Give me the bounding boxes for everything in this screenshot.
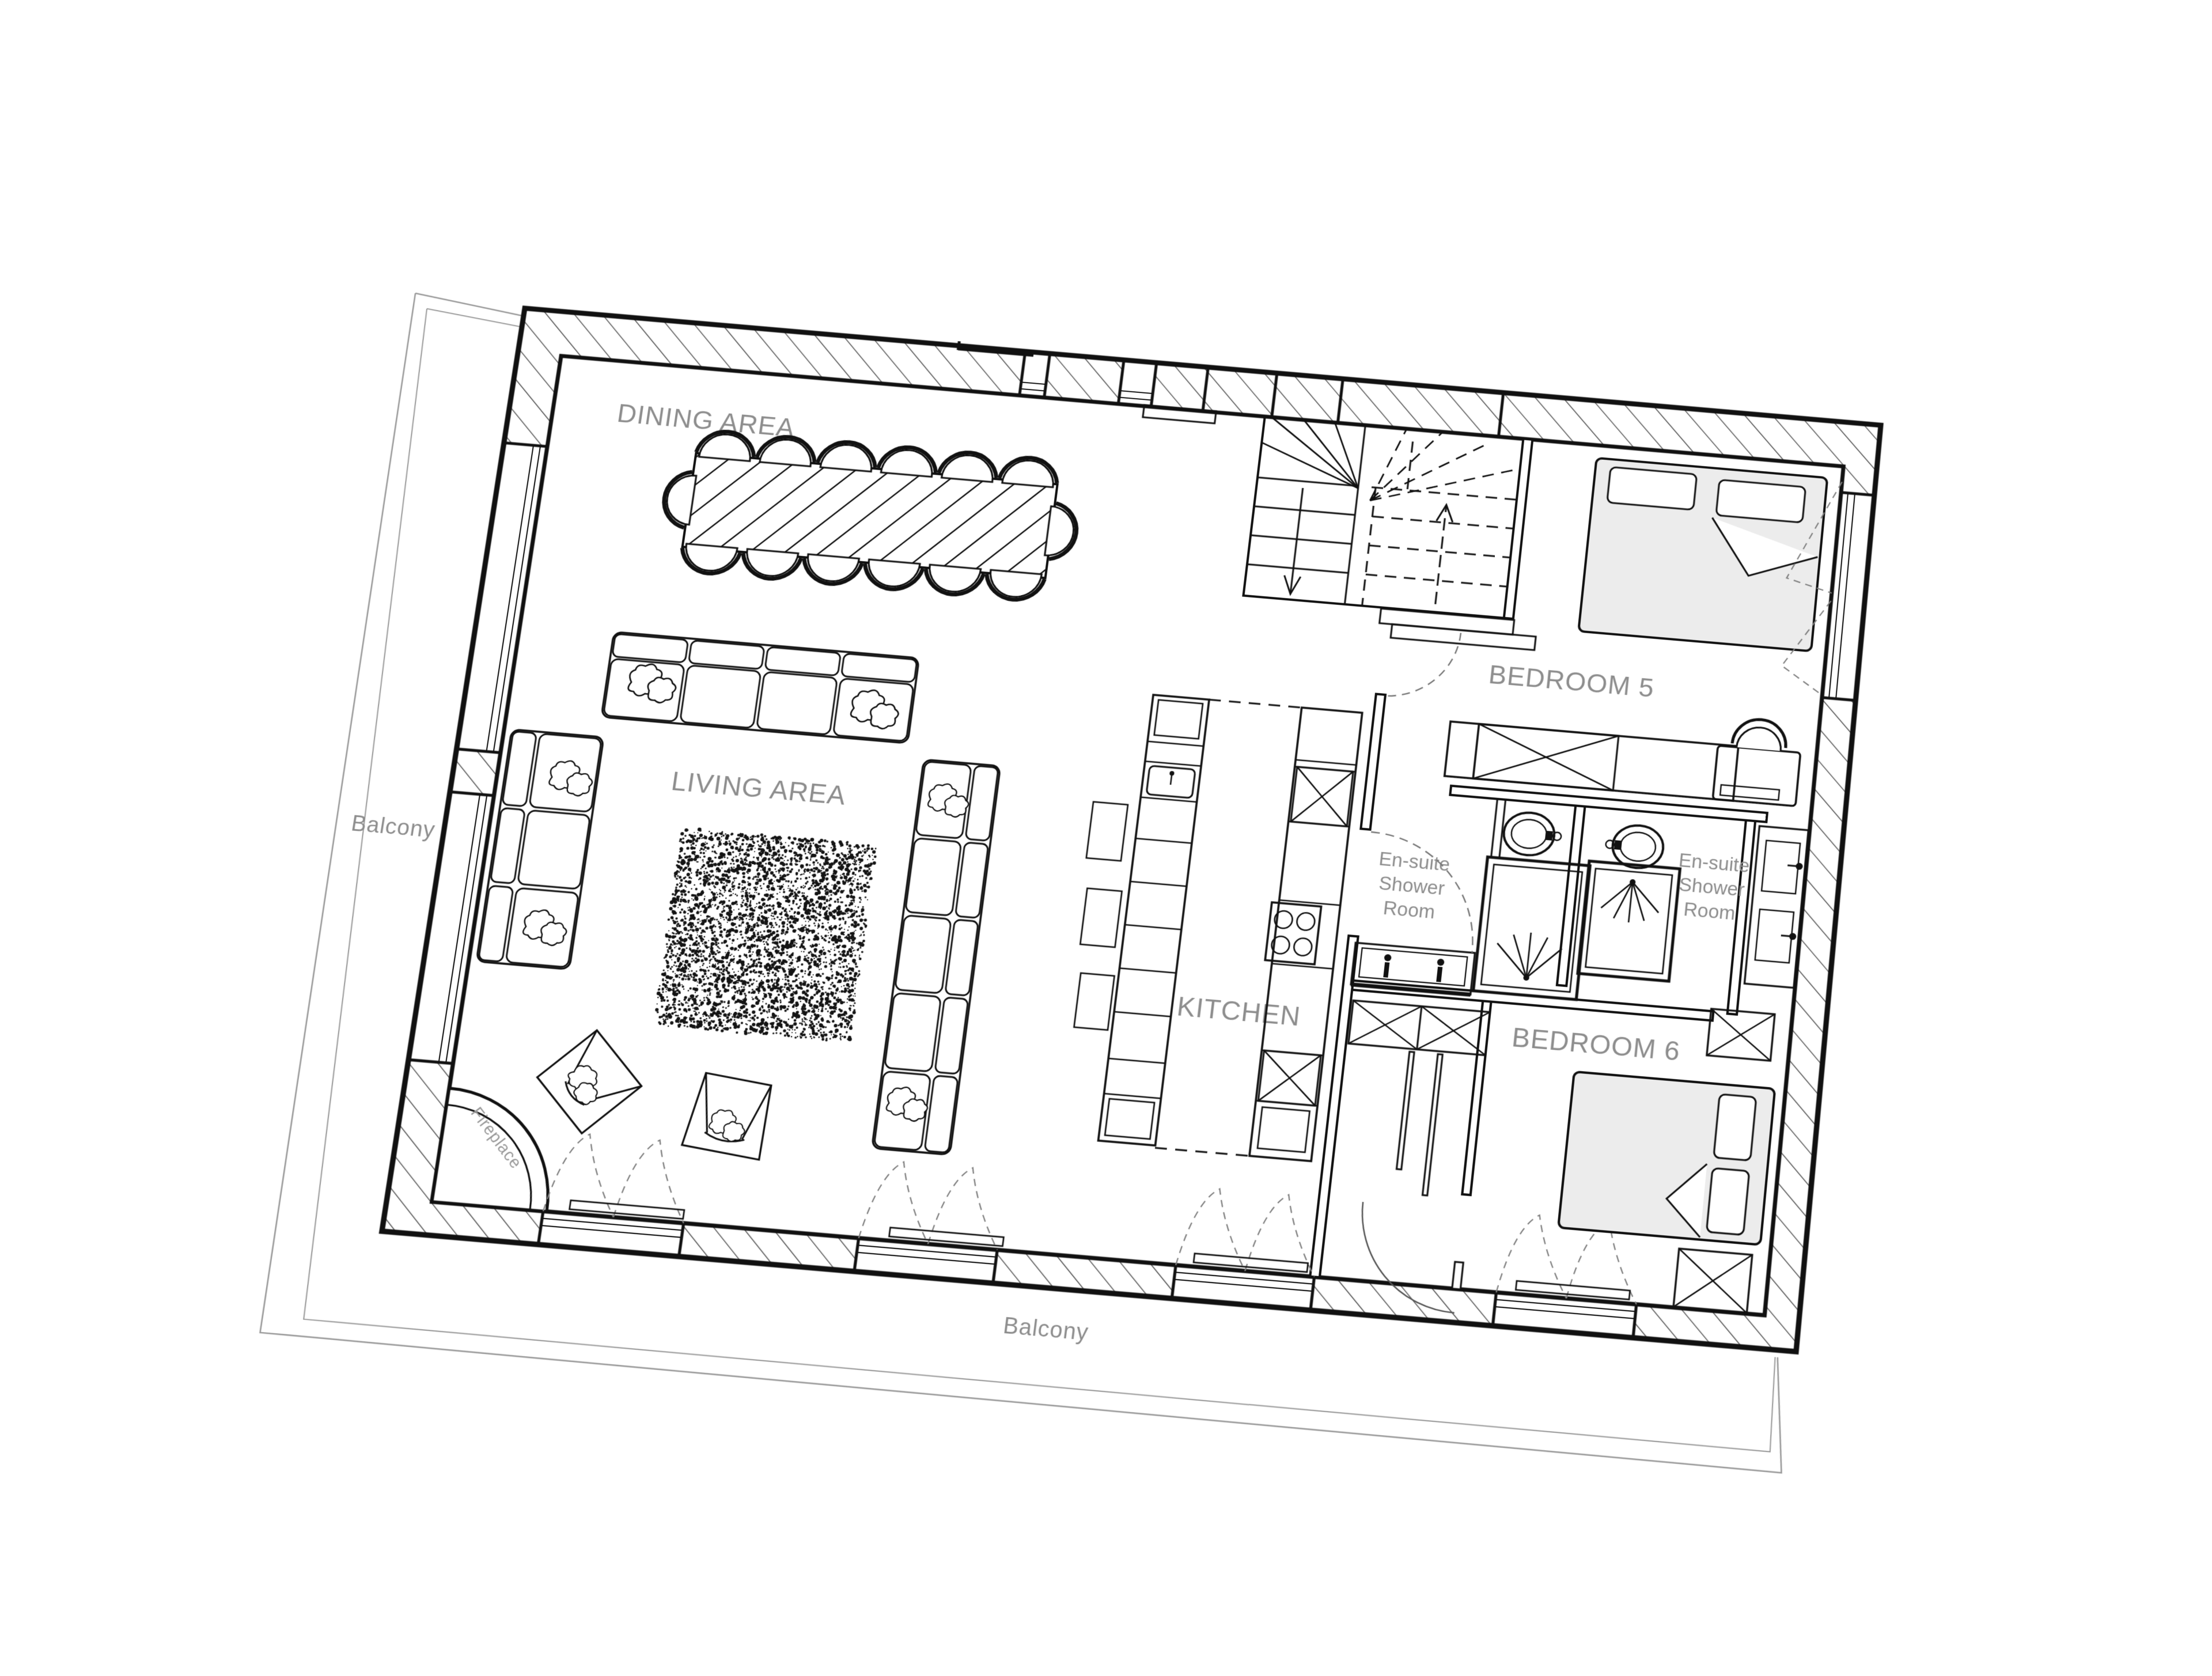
- svg-text:DINING AREA: DINING AREA: [615, 399, 797, 442]
- svg-text:Room: Room: [1683, 898, 1736, 924]
- svg-text:KITCHEN: KITCHEN: [1175, 992, 1302, 1031]
- svg-text:LIVING AREA: LIVING AREA: [669, 767, 848, 811]
- svg-text:Shower: Shower: [1378, 872, 1446, 899]
- svg-text:En-suite: En-suite: [1678, 849, 1751, 877]
- svg-text:Room: Room: [1382, 897, 1436, 923]
- svg-text:En-suite: En-suite: [1378, 848, 1451, 875]
- svg-text:BEDROOM 6: BEDROOM 6: [1510, 1023, 1681, 1066]
- svg-text:Balcony: Balcony: [1002, 1312, 1090, 1345]
- svg-text:BEDROOM 5: BEDROOM 5: [1487, 660, 1656, 703]
- svg-text:Shower: Shower: [1678, 873, 1746, 901]
